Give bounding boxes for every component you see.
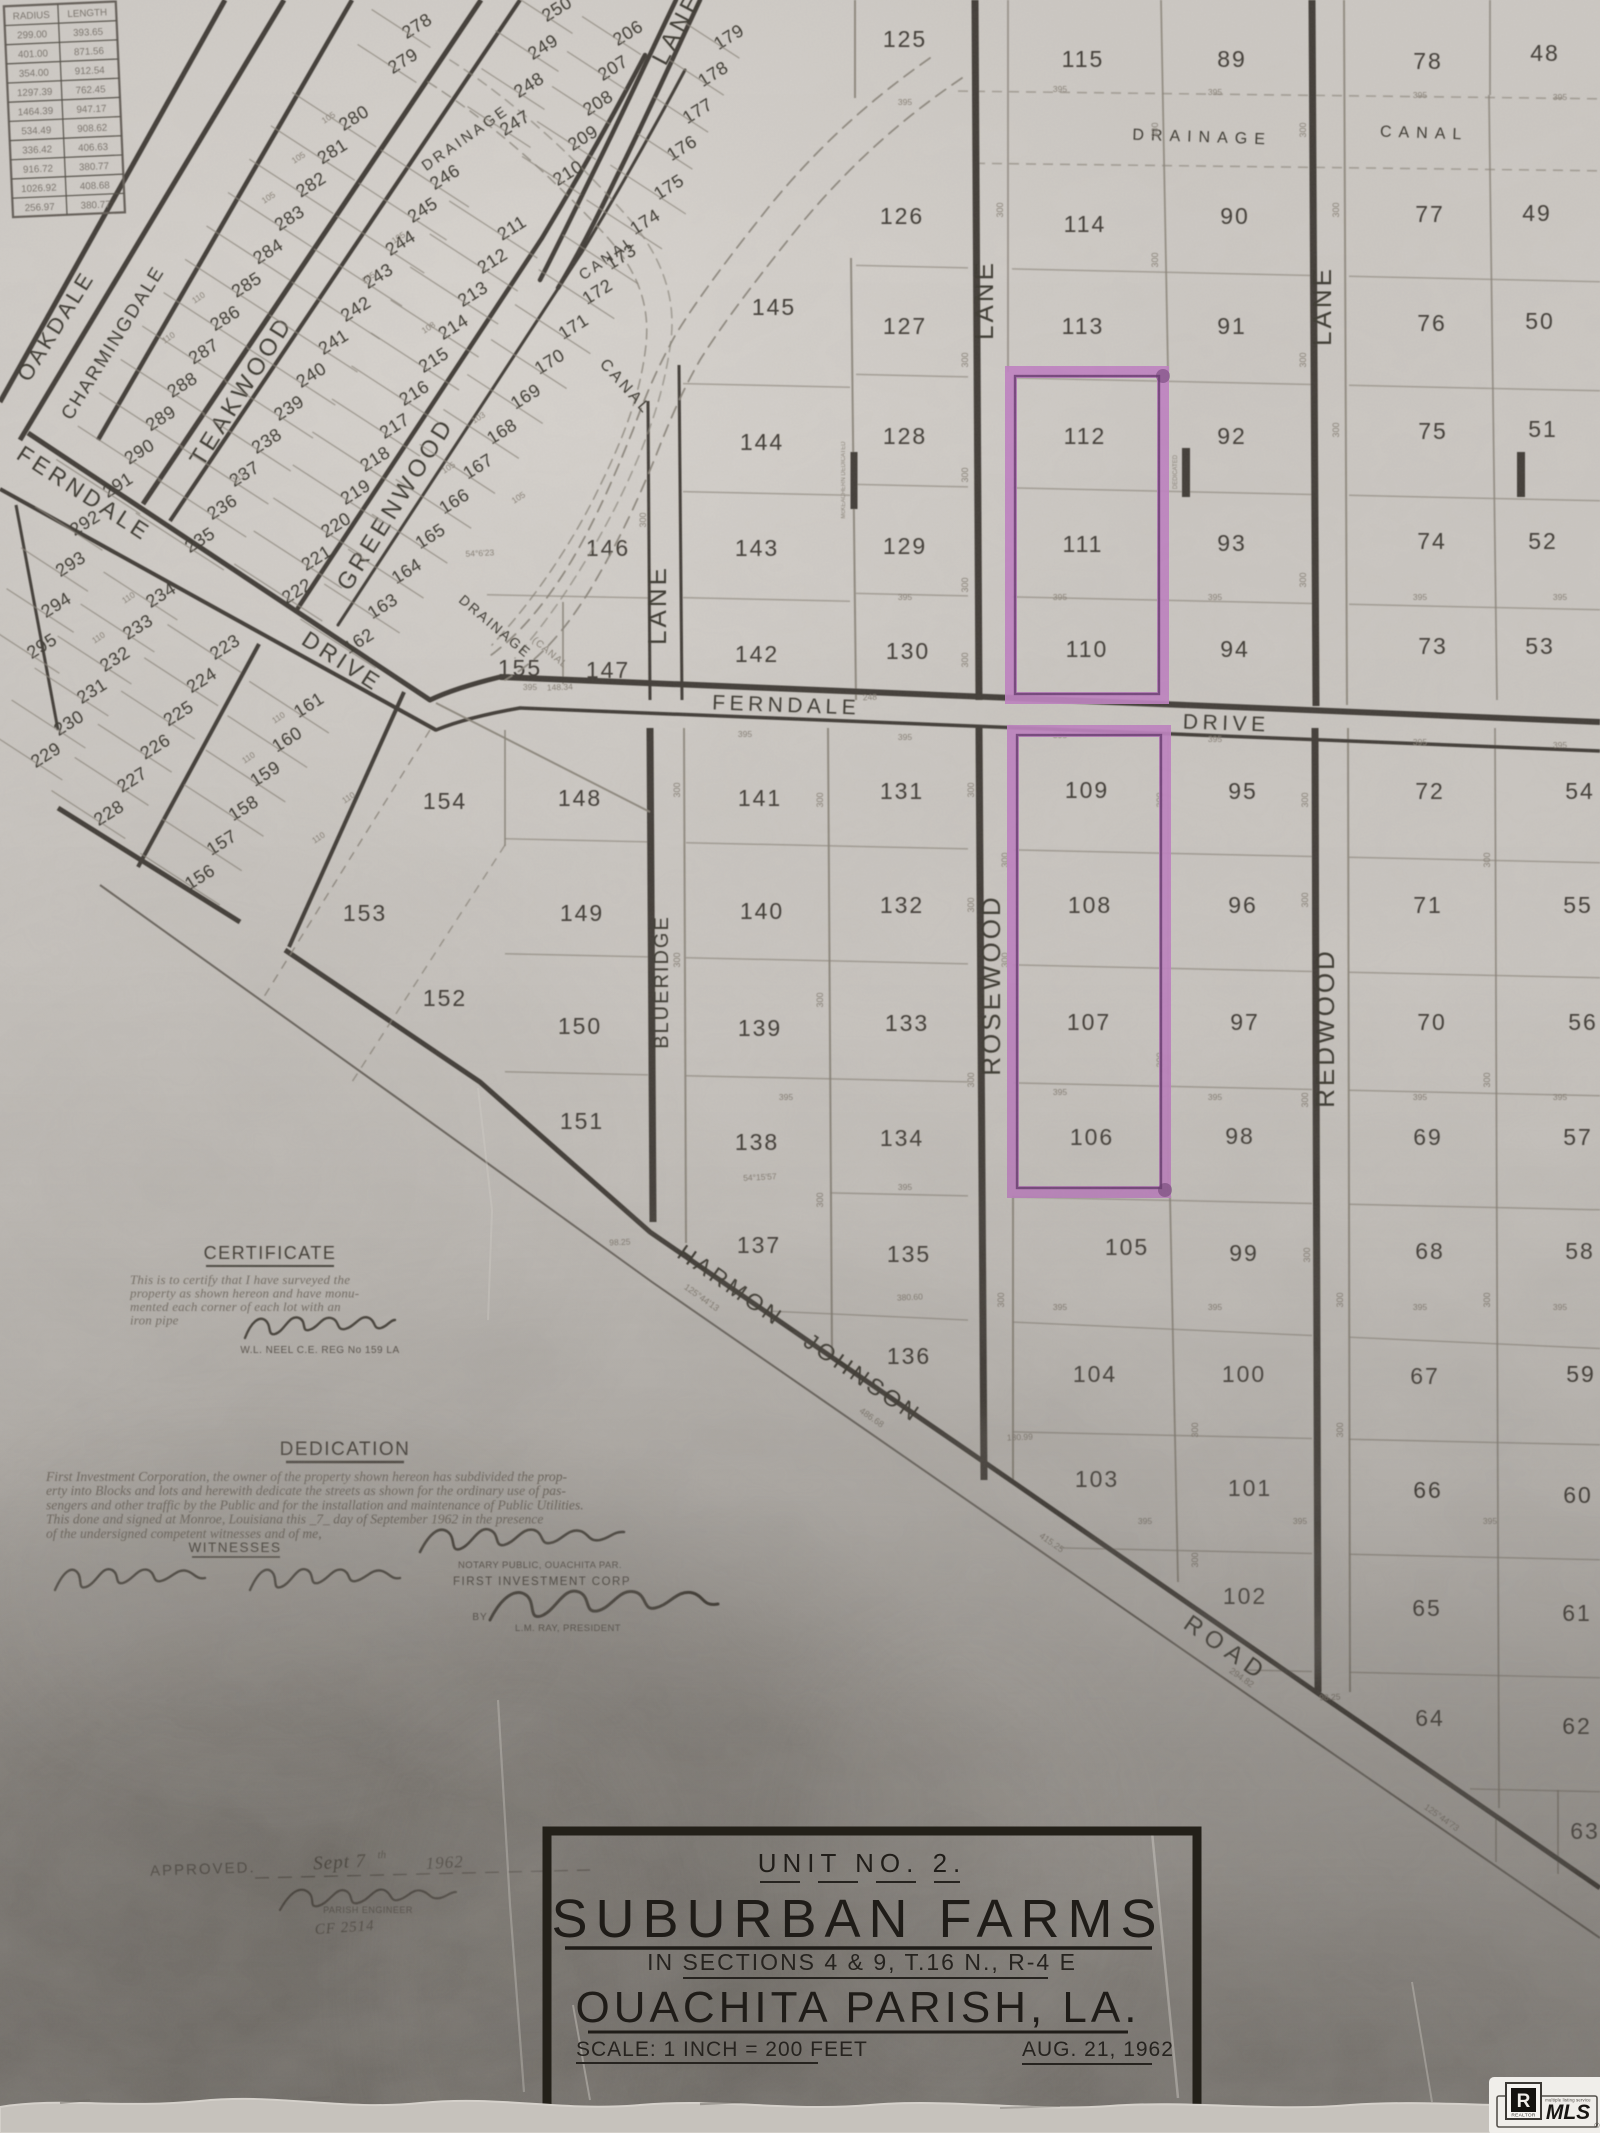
svg-text:OUACHITA PARISH, LA.: OUACHITA PARISH, LA. <box>576 1983 1141 2032</box>
svg-text:REALTOR: REALTOR <box>1511 2113 1536 2119</box>
svg-text:IN SECTIONS 4 & 9, T.16 N.: IN SECTIONS 4 & 9, T.16 N., R-4 E <box>647 1949 1077 1975</box>
svg-text:SUBURBAN FARMS: SUBURBAN FARMS <box>551 1889 1164 1949</box>
svg-text:R: R <box>1517 2091 1531 2112</box>
svg-text:SCALE: 1 INCH = 200 FEET: SCALE: 1 INCH = 200 FEET <box>576 2038 868 2061</box>
svg-text:UNIT NO. 2.: UNIT NO. 2. <box>758 1848 967 1878</box>
svg-text:®: ® <box>1594 2122 1600 2130</box>
svg-text:MLS: MLS <box>1546 2101 1590 2124</box>
svg-text:AUG. 21, 1962: AUG. 21, 1962 <box>1022 2038 1174 2061</box>
